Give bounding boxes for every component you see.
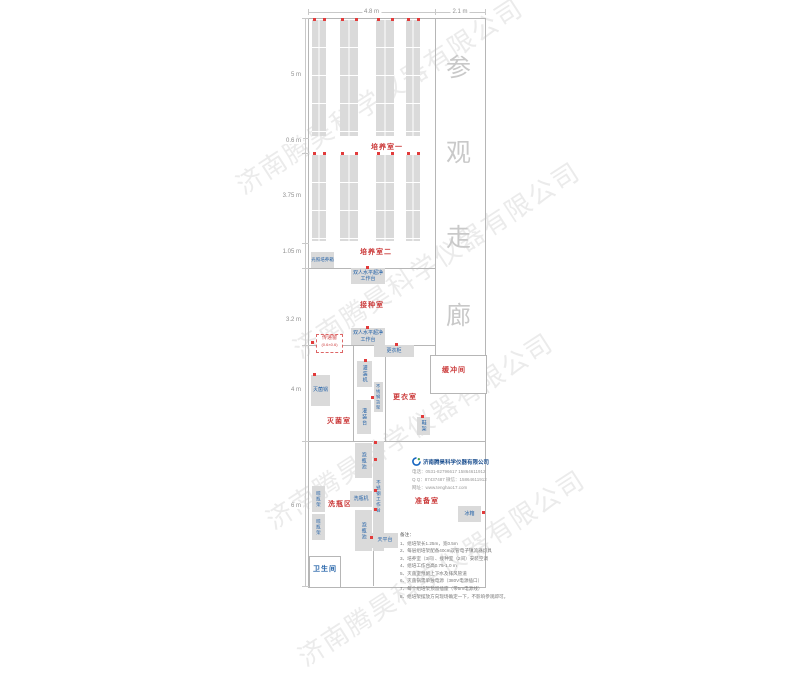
dimension-tick (302, 18, 309, 19)
equipment-block: 灭菌锅 (311, 375, 330, 406)
pass-window-size: (0.6×0.6) (317, 342, 342, 347)
equipment-block: 洗瓶机 (350, 491, 372, 507)
wall (353, 345, 354, 441)
contact-line: Q Q：87437487 微信：15864611912 (412, 476, 497, 484)
power-outlet-dot (371, 396, 374, 399)
room-label: 接种室 (360, 300, 384, 310)
shelving-rack (340, 155, 358, 241)
pass-window-label: 传递窗 (322, 335, 337, 341)
equipment-block: 更衣柜 (374, 345, 414, 357)
dimension-tick (302, 441, 309, 442)
shelving-rack (312, 155, 326, 241)
shelving-rack (312, 20, 326, 136)
dimension-chain (305, 18, 306, 586)
power-outlet-dot (341, 18, 344, 21)
note-item: 4、组培工作台高0.75-1.0 m (400, 562, 508, 570)
note-item: 2、每层组培架配备40cm双管电子镇流器灯具 (400, 547, 508, 555)
power-outlet-dot (391, 152, 394, 155)
notes-heading: 备注： (400, 531, 508, 539)
power-outlet-dot (364, 359, 367, 362)
dimension-tick (435, 9, 436, 15)
power-outlet-dot (366, 266, 369, 269)
power-outlet-dot (417, 18, 420, 21)
equipment-block: 灌装台 (357, 400, 371, 434)
power-outlet-dot (482, 511, 485, 514)
power-outlet-dot (323, 152, 326, 155)
dimension-label: 5 m (289, 72, 303, 78)
dimension-label: 3.75 m (281, 193, 303, 199)
shelving-rack (340, 20, 358, 136)
room-label: 培养室二 (360, 247, 392, 257)
pass-window: 传递窗 (0.6×0.6) (316, 334, 343, 353)
power-outlet-dot (374, 458, 377, 461)
note-item: 7、每个组培架预留插座（带5m电源线） (400, 585, 508, 593)
power-outlet-dot (374, 441, 377, 444)
wall (435, 18, 436, 355)
power-outlet-dot (395, 343, 398, 346)
room-label: 准备室 (415, 496, 439, 506)
equipment-block: 冰箱 (458, 506, 481, 522)
power-outlet-dot (313, 18, 316, 21)
dimension-tick (302, 345, 309, 346)
power-outlet-dot (377, 152, 380, 155)
dimension-tick (302, 243, 309, 244)
power-outlet-dot (377, 18, 380, 21)
power-outlet-dot (355, 152, 358, 155)
room-label: 洗瓶区 (328, 499, 352, 509)
room-label: 缓冲间 (442, 365, 466, 375)
power-outlet-dot (374, 508, 377, 511)
dimension-label: 4 m (289, 387, 303, 393)
power-outlet-dot (323, 18, 326, 21)
note-item: 8、组培架摆放方向现场确定一下，不影响参观即可。 (400, 593, 508, 601)
company-logo-icon (412, 457, 421, 466)
room-label: 培养室一 (371, 142, 403, 152)
company-logo-block: 济南腾昊科学仪器有限公司 电话：0531-82796617 1586461191… (412, 457, 497, 492)
dimension-label: 6 m (289, 503, 303, 509)
dimension-tick (302, 586, 309, 587)
room-label: 灭菌室 (327, 416, 351, 426)
power-outlet-dot (421, 415, 424, 418)
shelving-rack (376, 155, 394, 241)
power-outlet-dot (341, 152, 344, 155)
power-outlet-dot (407, 18, 410, 21)
dimension-label: 4.8 m (362, 9, 381, 15)
power-outlet-dot (366, 326, 369, 329)
equipment-block: 泡瓶池 (355, 510, 372, 551)
note-item: 1、组培架长1.25m，宽0.5m (400, 540, 508, 548)
note-item: 6、灭菌锅需单独电源（380V电源插口） (400, 577, 508, 585)
equipment-block: 晾瓶架 (312, 486, 325, 512)
equipment-block: 泡瓶池 (355, 443, 372, 478)
power-outlet-dot (355, 18, 358, 21)
equipment-block: 鞋架 (417, 417, 430, 435)
note-item: 5、灭菌室预留上下水及排风管道 (400, 570, 508, 578)
room-label: 更衣室 (393, 392, 417, 402)
equipment-block: 双人水平超净工作台 (351, 268, 385, 284)
dimension-label: 3.2 m (284, 317, 303, 323)
dimension-tick (302, 138, 309, 139)
power-outlet-dot (313, 152, 316, 155)
power-outlet-dot (374, 489, 377, 492)
dimension-tick (308, 9, 309, 15)
equipment-block: 不锈钢货架 (374, 382, 383, 412)
room-label: 卫生间 (313, 564, 337, 574)
shelving-rack (406, 20, 420, 136)
corridor-caption-char: 走 (446, 218, 471, 254)
equipment-block: 双人水平超净工作台 (351, 328, 385, 345)
dimension-label: 1.05 m (281, 249, 303, 255)
floorplan-canvas: 济南腾昊科学仪器有限公司济南腾昊科学仪器有限公司济南腾昊科学仪器有限公司济南腾昊… (0, 0, 800, 600)
equipment-block: 灌装机 (357, 361, 372, 387)
power-outlet-dot (370, 536, 373, 539)
equipment-block: 光照培养箱 (311, 252, 334, 268)
power-outlet-dot (313, 373, 316, 376)
dimension-tick (302, 268, 309, 269)
power-outlet-dot (311, 341, 314, 344)
power-outlet-dot (417, 152, 420, 155)
shelving-rack (376, 20, 394, 136)
wall (308, 441, 485, 442)
contact-line: 电话：0531-82796617 15864611912 (412, 468, 497, 476)
corridor-caption-char: 观 (446, 133, 471, 169)
shelving-rack (406, 155, 420, 241)
wall (385, 345, 386, 441)
corridor-caption-char: 参 (446, 48, 471, 84)
dimension-label: 0.6 m (284, 138, 303, 144)
power-outlet-dot (391, 18, 394, 21)
note-item: 3、培养室（3间）、接种室（2间）安装空调 (400, 555, 508, 563)
wall (373, 548, 374, 586)
dimension-label: 2.1 m (450, 9, 469, 15)
power-outlet-dot (407, 152, 410, 155)
notes-block: 备注： 1、组培架长1.25m，宽0.5m2、每层组培架配备40cm双管电子镇流… (400, 531, 508, 600)
dimension-tick (485, 9, 486, 15)
equipment-block: 晾瓶架 (312, 514, 325, 540)
contact-line: 网址：www.tenghao17.com (412, 484, 497, 492)
company-name: 济南腾昊科学仪器有限公司 (423, 458, 489, 466)
equipment-block: 天平台 (372, 533, 398, 548)
corridor-caption-char: 廊 (446, 296, 471, 332)
dimension-tick (302, 153, 309, 154)
company-contact: 电话：0531-82796617 15864611912Q Q：87437487… (412, 468, 497, 492)
